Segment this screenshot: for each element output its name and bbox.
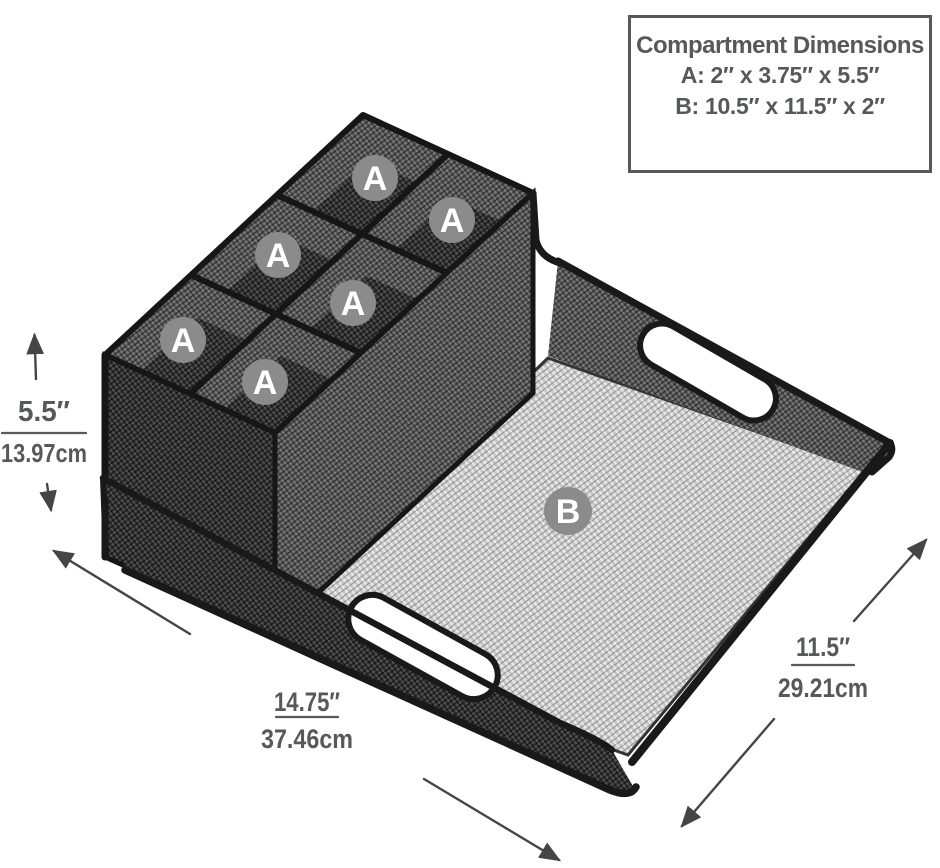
depth-arrow-down <box>682 719 774 826</box>
badge-letter: A <box>440 202 465 240</box>
left-corner-frame <box>103 478 106 557</box>
width-cm-label: 37.46cm <box>261 724 353 754</box>
block-step-frame <box>533 193 560 263</box>
compartment-badge-a-6: A <box>242 359 288 405</box>
compartment-badge-a-3: A <box>255 232 301 278</box>
height-cm-label: 13.97cm <box>1 438 87 468</box>
depth-arrow-up <box>854 540 926 621</box>
height-arrow-down <box>47 484 51 510</box>
compartment-dimensions-title: Compartment Dimensions <box>631 32 929 60</box>
width-arrow-right <box>424 779 559 860</box>
compartment-badge-a-5: A <box>160 317 206 363</box>
badge-letter: A <box>171 322 196 360</box>
compartment-a-dimensions: A: 2″ x 3.75″ x 5.5″ <box>631 60 929 91</box>
depth-cm-label: 29.21cm <box>778 673 868 703</box>
badge-letter: A <box>363 160 388 198</box>
product-image-canvas: A A A A A A B <box>0 0 940 868</box>
badge-letter: A <box>341 285 366 323</box>
depth-inches-label: 11.5″ <box>796 632 850 662</box>
compartment-badge-a-4: A <box>330 280 376 326</box>
compartment-b-dimensions: B: 10.5″ x 11.5″ x 2″ <box>631 91 929 122</box>
height-arrow-up <box>35 335 37 379</box>
compartment-badge-a-2: A <box>429 197 475 243</box>
compartment-badge-a-1: A <box>352 155 398 201</box>
compartment-dimensions-box: Compartment Dimensions A: 2″ x 3.75″ x 5… <box>628 15 932 173</box>
width-inches-label: 14.75″ <box>274 687 340 717</box>
badge-letter: A <box>253 364 278 402</box>
height-inches-label: 5.5″ <box>18 396 70 428</box>
badge-letter: B <box>556 493 581 531</box>
badge-letter: A <box>266 237 291 275</box>
compartment-badge-b: B <box>544 487 592 535</box>
